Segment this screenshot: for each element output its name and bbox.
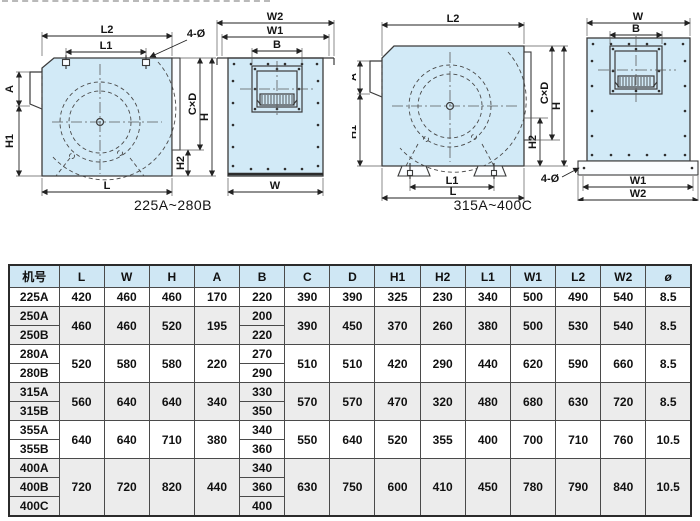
dim-label-cxd: C×D [187, 93, 199, 115]
column-header-b: B [240, 265, 285, 288]
dim-label-b: B [273, 39, 281, 51]
table-row-315a: 315A560640640340330570570470320480680630… [9, 383, 691, 402]
dim-label-w2: W2 [630, 188, 647, 200]
column-header-l2: L2 [556, 265, 601, 288]
diagram-caption-225a-280b: 225A~280B [93, 197, 253, 213]
cell-d: 640 [330, 421, 375, 459]
cell-l: 640 [59, 421, 104, 459]
table-row-355a: 355A640640710380340550640520355400700710… [9, 421, 691, 440]
column-header-c: C [285, 265, 330, 288]
cell-b: 330 [240, 383, 285, 402]
dim-label-h1: H1 [4, 134, 16, 148]
cell-a: 170 [194, 288, 239, 307]
bolt-callout-label: 4-Ø [541, 173, 560, 185]
dim-label-h2: H2 [175, 156, 187, 170]
cell-b: 400 [240, 497, 285, 517]
cell-w2: 720 [601, 383, 646, 421]
cell-l: 520 [59, 345, 104, 383]
dim-label-b: B [632, 23, 640, 35]
model-cell: 280A [9, 345, 59, 364]
cell-b: 360 [240, 478, 285, 497]
model-cell: 400C [9, 497, 59, 517]
cell-l1: 450 [465, 459, 510, 517]
cell-w1: 500 [510, 288, 555, 307]
cell-b: 200 [240, 307, 285, 326]
cell-d: 390 [330, 288, 375, 307]
model-cell: 355B [9, 440, 59, 459]
cell-h1: 470 [375, 383, 420, 421]
cell-l2: 790 [556, 459, 601, 517]
column-header-diameter: ø [646, 265, 691, 288]
cell-b: 360 [240, 440, 285, 459]
fan-side-view: L2 L1 4-Ø A H1 [4, 24, 216, 196]
cell-h2: 320 [420, 383, 465, 421]
cell-a: 440 [194, 459, 239, 517]
cell-w2: 540 [601, 288, 646, 307]
dim-label-w1: W1 [630, 175, 647, 187]
dim-label-l: L [104, 180, 111, 192]
cell-l1: 440 [465, 345, 510, 383]
cell-c: 390 [285, 288, 330, 307]
model-cell: 400B [9, 478, 59, 497]
column-header-h2: H2 [420, 265, 465, 288]
cell-c: 510 [285, 345, 330, 383]
model-cell: 400A [9, 459, 59, 478]
cell-w1: 680 [510, 383, 555, 421]
cell-c: 570 [285, 383, 330, 421]
cell-h: 520 [149, 307, 194, 345]
cell-w2: 840 [601, 459, 646, 517]
cell-dia: 8.5 [646, 307, 691, 345]
dim-label-w2: W2 [267, 11, 284, 23]
model-cell: 355A [9, 421, 59, 440]
cell-w1: 500 [510, 307, 555, 345]
model-cell: 315B [9, 402, 59, 421]
cell-c: 390 [285, 307, 330, 345]
cell-w: 640 [104, 421, 149, 459]
dim-label-l1: L1 [100, 40, 113, 52]
cell-l2: 530 [556, 307, 601, 345]
fan-casing [587, 38, 690, 161]
cell-h: 710 [149, 421, 194, 459]
fan-housing [42, 58, 172, 176]
column-header-d: D [330, 265, 375, 288]
cell-h: 820 [149, 459, 194, 517]
cell-h1: 370 [375, 307, 420, 345]
cell-a: 220 [194, 345, 239, 383]
inlet-flange [30, 72, 42, 109]
cell-w2: 760 [601, 421, 646, 459]
cell-b: 340 [240, 459, 285, 478]
base-plate [578, 161, 698, 175]
dim-label-w: W [633, 11, 644, 23]
column-header-h: H [149, 265, 194, 288]
table-row-250a: 250A460460520195200390450370260380500530… [9, 307, 691, 326]
dim-label-h: H [551, 102, 563, 110]
table-row-400a: 400A720720820440340630750600410450780790… [9, 459, 691, 478]
dim-label-h: H [199, 113, 211, 121]
model-cell: 225A [9, 288, 59, 307]
cell-b: 220 [240, 326, 285, 345]
dim-label-h1: H1 [352, 125, 359, 139]
cell-h2: 410 [420, 459, 465, 517]
table-row-280a: 280A520580580220270510510420290440620590… [9, 345, 691, 364]
cell-dia: 8.5 [646, 288, 691, 307]
cell-l2: 710 [556, 421, 601, 459]
cell-l2: 590 [556, 345, 601, 383]
cell-dia: 10.5 [646, 421, 691, 459]
column-header-l: L [59, 265, 104, 288]
dim-label-l2: L2 [447, 13, 460, 25]
cell-a: 195 [194, 307, 239, 345]
dim-label-w1: W1 [267, 25, 284, 37]
dimension-table: 机号LWHABCDH1H2L1W1L2W2ø225A42046046017022… [8, 264, 692, 517]
cell-l1: 380 [465, 307, 510, 345]
dim-label-a: A [4, 85, 16, 93]
cell-h1: 600 [375, 459, 420, 517]
cell-w2: 660 [601, 345, 646, 383]
cell-l1: 480 [465, 383, 510, 421]
cell-dia: 8.5 [646, 383, 691, 421]
cell-w1: 620 [510, 345, 555, 383]
cell-a: 380 [194, 421, 239, 459]
top-dashed-line [2, 0, 270, 2]
cell-b: 270 [240, 345, 285, 364]
spec-sheet-page: L2 L1 4-Ø A H1 [0, 0, 700, 521]
cell-b: 290 [240, 364, 285, 383]
outlet-flange [524, 52, 531, 140]
cell-w: 640 [104, 383, 149, 421]
cell-h2: 230 [420, 288, 465, 307]
bolt-callout-label: 4-Ø [187, 28, 206, 40]
cell-l: 720 [59, 459, 104, 517]
model-cell: 280B [9, 364, 59, 383]
cell-w: 580 [104, 345, 149, 383]
dim-label-cxd: C×D [539, 82, 551, 104]
column-header-w2: W2 [601, 265, 646, 288]
cell-c: 630 [285, 459, 330, 517]
cell-h1: 520 [375, 421, 420, 459]
cell-c: 550 [285, 421, 330, 459]
table-header-row: 机号LWHABCDH1H2L1W1L2W2ø [9, 265, 691, 288]
cell-h: 460 [149, 288, 194, 307]
fan-side-view: L2 A H1 L1 L [352, 13, 568, 201]
cell-h: 580 [149, 345, 194, 383]
cell-l: 460 [59, 307, 104, 345]
column-header-a: A [194, 265, 239, 288]
dim-label-l2: L2 [101, 24, 114, 36]
diagram-225a-280b: L2 L1 4-Ø A H1 [0, 6, 345, 201]
cell-d: 750 [330, 459, 375, 517]
cell-l1: 340 [465, 288, 510, 307]
cell-w2: 540 [601, 307, 646, 345]
fan-front-view: W2 W1 B W [217, 11, 334, 196]
diagram-caption-315a-400c: 315A~400C [413, 197, 573, 213]
column-header-model: 机号 [9, 265, 59, 288]
model-cell: 250B [9, 326, 59, 345]
dim-label-a: A [352, 73, 359, 81]
cell-b: 350 [240, 402, 285, 421]
table-row-225a: 225A420460460170220390390325230340500490… [9, 288, 691, 307]
cell-h1: 325 [375, 288, 420, 307]
cell-h2: 290 [420, 345, 465, 383]
fan-casing [228, 58, 323, 176]
cell-h2: 260 [420, 307, 465, 345]
cell-l: 420 [59, 288, 104, 307]
cell-w: 720 [104, 459, 149, 517]
cell-l: 560 [59, 383, 104, 421]
cell-h1: 420 [375, 345, 420, 383]
cell-w1: 700 [510, 421, 555, 459]
column-header-w1: W1 [510, 265, 555, 288]
cell-b: 340 [240, 421, 285, 440]
cell-b: 220 [240, 288, 285, 307]
cell-l1: 400 [465, 421, 510, 459]
cell-l2: 490 [556, 288, 601, 307]
cell-d: 510 [330, 345, 375, 383]
cell-w1: 780 [510, 459, 555, 517]
outlet-flange [172, 58, 180, 150]
cell-h2: 355 [420, 421, 465, 459]
dim-label-w: W [270, 180, 281, 192]
cell-d: 570 [330, 383, 375, 421]
dim-label-h2: H2 [527, 135, 539, 149]
model-cell: 250A [9, 307, 59, 326]
diagram-315a-400c: L2 A H1 L1 L [352, 6, 700, 201]
model-cell: 315A [9, 383, 59, 402]
cell-w: 460 [104, 288, 149, 307]
column-header-w: W [104, 265, 149, 288]
cell-h: 640 [149, 383, 194, 421]
column-header-h1: H1 [375, 265, 420, 288]
cell-dia: 8.5 [646, 345, 691, 383]
cell-dia: 10.5 [646, 459, 691, 517]
cell-w: 460 [104, 307, 149, 345]
column-header-l1: L1 [465, 265, 510, 288]
cell-a: 340 [194, 383, 239, 421]
cell-l2: 630 [556, 383, 601, 421]
cell-d: 450 [330, 307, 375, 345]
inlet-flange [370, 61, 382, 97]
